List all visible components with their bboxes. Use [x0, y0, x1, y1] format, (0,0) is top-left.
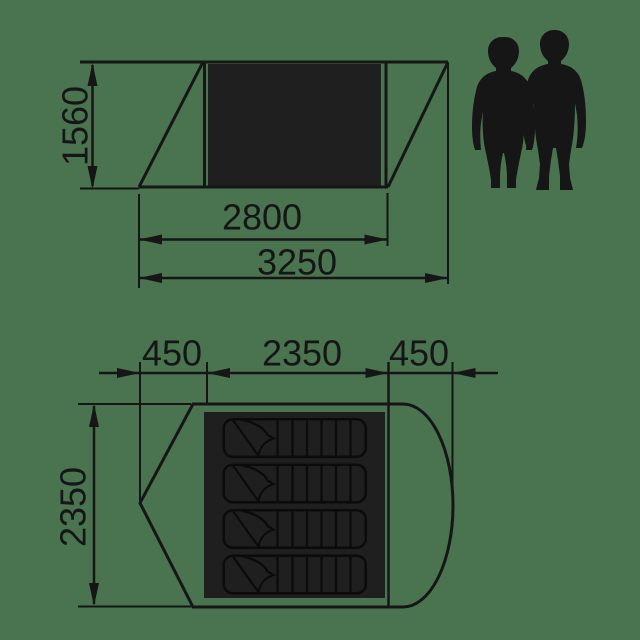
side-height-label: 1560 [55, 86, 96, 166]
tent-side-view: 1560 2800 3250 [55, 62, 449, 288]
arrow-left-icon [453, 368, 476, 378]
arrow-right-icon [425, 273, 448, 283]
top-left-porch-label: 450 [142, 333, 202, 374]
scale-figures [472, 30, 586, 190]
arrow-up-icon [89, 404, 99, 427]
dimension-depth-2350: 2350 [53, 404, 192, 607]
side-outer-width-label: 3250 [257, 242, 337, 283]
tent-top-view: 450 2350 450 2350 [53, 333, 499, 608]
tent-dimension-diagram: 1560 2800 3250 [0, 0, 640, 640]
side-inner-width-label: 2800 [222, 197, 302, 238]
arrow-right-icon [365, 235, 388, 245]
arrow-right-icon [366, 368, 389, 378]
dimension-height-1560: 1560 [55, 63, 140, 189]
top-depth-label: 2350 [53, 467, 94, 547]
sleeping-bag [224, 465, 366, 503]
top-inner-width-label: 2350 [262, 333, 342, 374]
arrow-left-icon [139, 235, 162, 245]
sleeping-bag [224, 510, 366, 548]
arrow-right-icon [117, 368, 140, 378]
top-right-porch-label: 450 [389, 333, 449, 374]
side-view-door-panel [208, 64, 381, 186]
sleeping-bag [224, 419, 366, 457]
side-view-right-slant [388, 62, 448, 187]
man-silhouette-icon [523, 30, 586, 190]
arrow-left-icon [139, 273, 162, 283]
arrow-up-icon [88, 63, 98, 86]
arrow-down-icon [89, 583, 99, 606]
sleeping-bag [224, 556, 366, 594]
side-view-left-slant [139, 62, 203, 187]
arrow-left-icon [207, 368, 230, 378]
arrow-down-icon [88, 166, 98, 189]
